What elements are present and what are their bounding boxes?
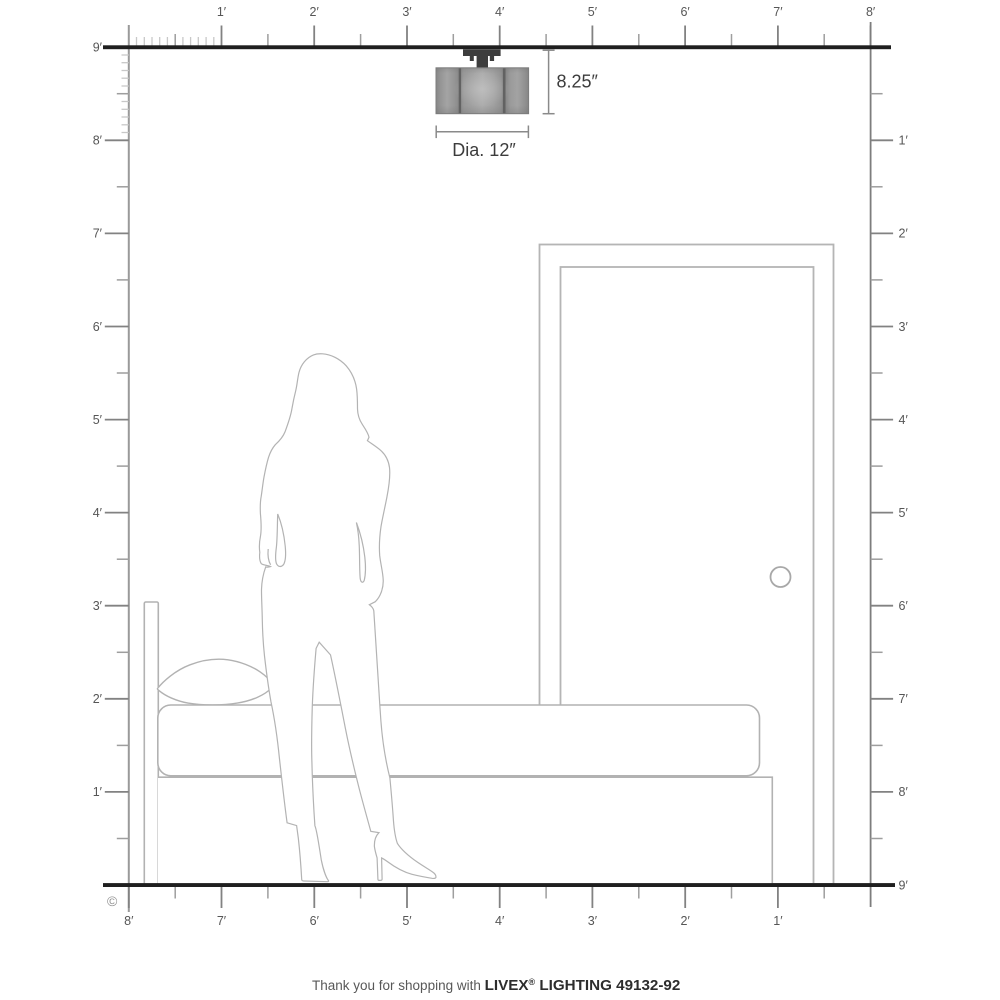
svg-text:Thank you for shopping with LI: Thank you for shopping with LIVEX® LIGHT… [312,977,680,994]
svg-text:4′: 4′ [495,914,505,928]
svg-text:1′: 1′ [899,134,909,148]
svg-text:4′: 4′ [899,413,909,427]
svg-text:6′: 6′ [899,599,909,613]
svg-text:8′: 8′ [899,785,909,799]
svg-text:2′: 2′ [681,914,691,928]
svg-text:9′: 9′ [899,878,909,892]
svg-text:8′: 8′ [866,5,876,19]
svg-text:8.25″: 8.25″ [557,72,599,92]
svg-text:1′: 1′ [217,5,227,19]
svg-text:1′: 1′ [773,914,783,928]
svg-text:7′: 7′ [773,5,783,19]
svg-text:2′: 2′ [310,5,320,19]
svg-text:4′: 4′ [93,506,103,520]
svg-text:8′: 8′ [124,914,134,928]
svg-text:5′: 5′ [93,413,103,427]
svg-text:3′: 3′ [588,914,598,928]
svg-text:5′: 5′ [899,506,909,520]
svg-text:6′: 6′ [310,914,320,928]
svg-text:2′: 2′ [899,227,909,241]
svg-text:3′: 3′ [899,320,909,334]
svg-text:©: © [107,893,118,909]
svg-text:9′: 9′ [93,41,103,55]
svg-text:7′: 7′ [93,227,103,241]
svg-text:4′: 4′ [495,5,505,19]
svg-text:3′: 3′ [93,599,103,613]
svg-text:7′: 7′ [899,692,909,706]
svg-text:6′: 6′ [680,5,690,19]
svg-text:Dia. 12″: Dia. 12″ [452,140,516,160]
svg-text:6′: 6′ [93,320,103,334]
svg-text:2′: 2′ [93,692,103,706]
svg-text:1′: 1′ [93,785,103,799]
svg-text:8′: 8′ [93,134,103,148]
svg-text:5′: 5′ [402,914,412,928]
svg-text:5′: 5′ [588,5,598,19]
svg-text:3′: 3′ [402,5,412,19]
svg-text:7′: 7′ [217,914,227,928]
